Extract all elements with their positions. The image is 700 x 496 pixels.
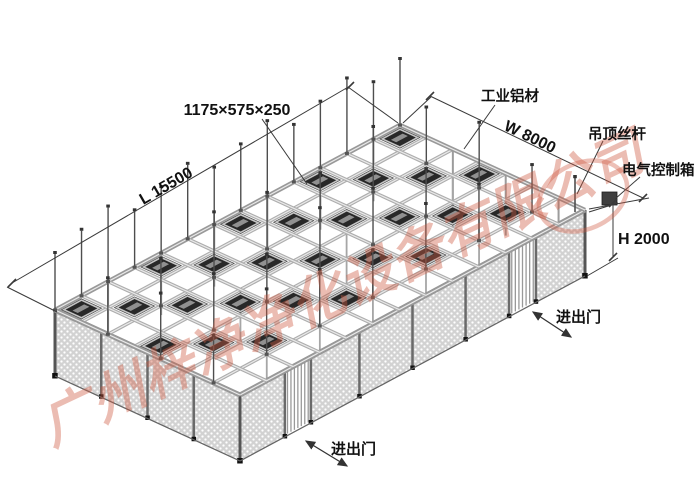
rod-nut — [292, 123, 296, 126]
rod-nut — [80, 228, 84, 231]
tick — [639, 194, 647, 202]
rod-nut — [318, 206, 322, 209]
rod-base-node — [159, 252, 163, 255]
rod-nut — [425, 106, 429, 109]
rod-base-node — [318, 166, 322, 169]
rod-nut — [371, 187, 375, 190]
rod-nut — [266, 119, 270, 122]
tick — [8, 279, 16, 287]
rod-base-node — [133, 266, 137, 269]
rod-nut — [212, 272, 216, 275]
rod-base-node — [398, 124, 402, 127]
rod-base-node — [186, 237, 190, 240]
label-aluminum-profile: 工业铝材 — [481, 87, 539, 105]
label-electrical-box: 电气控制箱 — [622, 161, 695, 179]
leader-module-size — [262, 119, 307, 184]
rod-nut — [265, 253, 269, 256]
rod-nut — [398, 57, 402, 60]
label-door-front: 进出门 — [331, 440, 376, 458]
rod-nut — [424, 202, 428, 205]
rod-nut — [265, 191, 269, 194]
tick — [426, 92, 434, 100]
rod-base-node — [345, 152, 349, 155]
rod-base-node — [265, 247, 269, 250]
rod-nut — [477, 121, 481, 124]
rod-nut — [159, 292, 163, 295]
rod-nut — [212, 210, 216, 213]
rod-base-node — [106, 333, 110, 336]
rod-nut — [345, 76, 349, 79]
label-ceiling-rod: 吊顶丝杆 — [588, 125, 646, 143]
rod-nut — [53, 251, 57, 254]
rod-base-node — [239, 209, 243, 212]
label-width: W 8000 — [501, 118, 558, 157]
rod-nut — [371, 125, 375, 128]
label-module-size: 1175×575×250 — [184, 102, 291, 119]
dim-ext-h-bot — [587, 258, 618, 276]
rod-base-node — [424, 162, 428, 165]
diagram-canvas: 广州梓净净化设备有限公司 1175×575×250 L 15500 W 8000… — [0, 0, 700, 496]
dim-ext-left — [7, 287, 57, 312]
foot-pad — [52, 373, 58, 379]
rod-nut — [239, 142, 243, 145]
label-door-right: 进出门 — [556, 308, 601, 326]
rod-nut — [106, 205, 110, 208]
rod-nut — [424, 167, 428, 170]
cleanroom-isometric-drawing: 广州梓净净化设备有限公司 1175×575×250 L 15500 W 8000… — [0, 0, 700, 496]
rod-nut — [372, 80, 376, 83]
label-height: H 2000 — [618, 231, 670, 248]
rod-nut — [106, 276, 110, 279]
rod-nut — [159, 257, 163, 260]
rod-nut — [477, 183, 481, 186]
rod-nut — [318, 171, 322, 174]
rod-base-node — [292, 180, 296, 183]
rod-base-node — [80, 294, 84, 297]
